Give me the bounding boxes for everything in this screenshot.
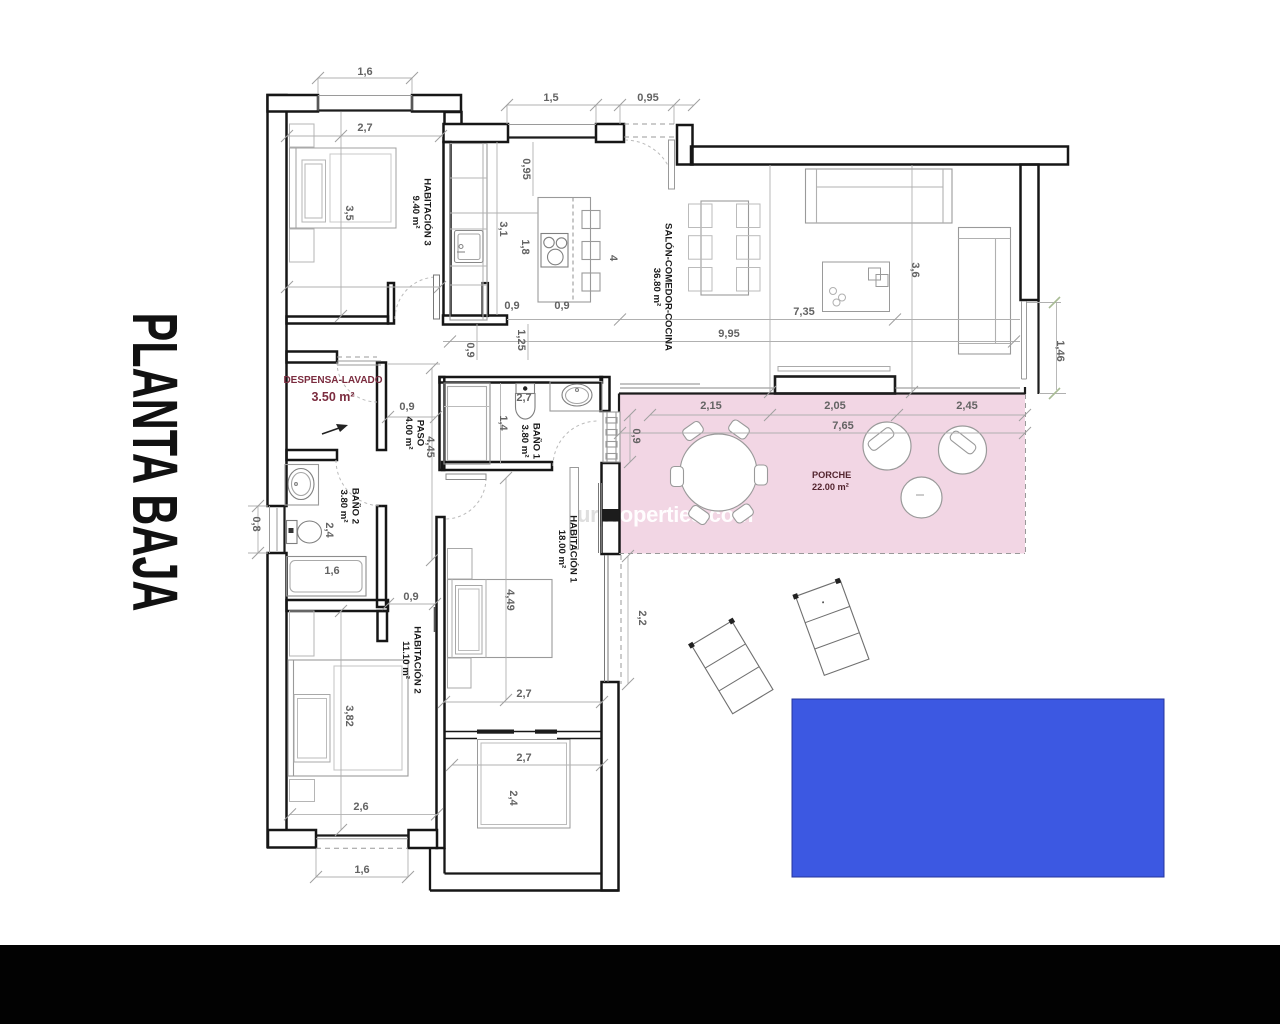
svg-text:22.00 m²: 22.00 m² [812,482,849,492]
svg-text:3,5: 3,5 [343,205,355,220]
svg-text:2,6: 2,6 [353,801,368,813]
svg-text:0,9: 0,9 [504,300,519,312]
svg-text:2,45: 2,45 [956,400,977,412]
svg-text:BAÑO 1: BAÑO 1 [531,423,542,460]
svg-text:1,5: 1,5 [543,92,558,104]
svg-text:3,82: 3,82 [343,705,355,726]
svg-text:4.00 m²: 4.00 m² [403,416,414,449]
svg-text:1,6: 1,6 [324,565,339,577]
svg-text:PLANTA BAJA: PLANTA BAJA [119,313,191,612]
svg-text:1,25: 1,25 [515,329,527,350]
svg-text:2,15: 2,15 [700,400,721,412]
svg-text:3.50 m²: 3.50 m² [311,390,354,404]
svg-text:0,8: 0,8 [250,516,262,531]
svg-text:0,9: 0,9 [399,401,414,413]
svg-text:9.40 m²: 9.40 m² [410,195,421,228]
svg-text:0,95: 0,95 [637,92,658,104]
svg-text:0,9: 0,9 [554,300,569,312]
svg-text:0,9: 0,9 [403,591,418,603]
svg-text:0,9: 0,9 [630,428,642,443]
svg-text:HABITACIÓN 2: HABITACIÓN 2 [412,626,424,694]
svg-text:PASO: PASO [415,420,426,447]
svg-text:1,46: 1,46 [1054,340,1066,361]
svg-text:3,1: 3,1 [497,221,509,236]
svg-text:11.10 m²: 11.10 m² [400,641,411,679]
svg-text:DESPENSA-LAVADO: DESPENSA-LAVADO [283,375,382,386]
svg-text:2,2: 2,2 [636,610,648,625]
svg-text:9,95: 9,95 [718,328,739,340]
svg-text:HABITACIÓN 1: HABITACIÓN 1 [568,515,580,583]
svg-text:2,7: 2,7 [516,392,531,404]
svg-text:2,4: 2,4 [323,522,335,538]
svg-text:7,35: 7,35 [793,306,814,318]
svg-text:36.80 m²: 36.80 m² [651,268,662,306]
svg-text:2,4: 2,4 [507,790,519,806]
svg-text:3.80 m²: 3.80 m² [519,424,530,457]
svg-text:HABITACIÓN 3: HABITACIÓN 3 [422,178,434,246]
svg-text:BAÑO 2: BAÑO 2 [350,488,361,524]
svg-text:4: 4 [607,255,619,262]
svg-text:PORCHE: PORCHE [812,470,851,480]
svg-text:7,65: 7,65 [832,420,853,432]
svg-text:3,6: 3,6 [909,262,921,277]
svg-text:2,7: 2,7 [516,688,531,700]
svg-text:18.00 m²: 18.00 m² [556,530,567,568]
svg-text:0,9: 0,9 [464,342,476,357]
svg-text:1,6: 1,6 [354,864,369,876]
svg-text:1,8: 1,8 [519,239,531,254]
svg-text:1,4: 1,4 [497,415,509,431]
svg-text:3.80 m²: 3.80 m² [338,489,349,522]
svg-text:1,6: 1,6 [357,66,372,78]
svg-text:0,95: 0,95 [520,158,532,179]
svg-text:SALÓN-COMEDOR-COCINA: SALÓN-COMEDOR-COCINA [663,223,675,351]
svg-text:4,49: 4,49 [504,589,516,610]
svg-text:2,05: 2,05 [824,400,845,412]
svg-text:2,7: 2,7 [516,752,531,764]
svg-text:2,7: 2,7 [357,122,372,134]
